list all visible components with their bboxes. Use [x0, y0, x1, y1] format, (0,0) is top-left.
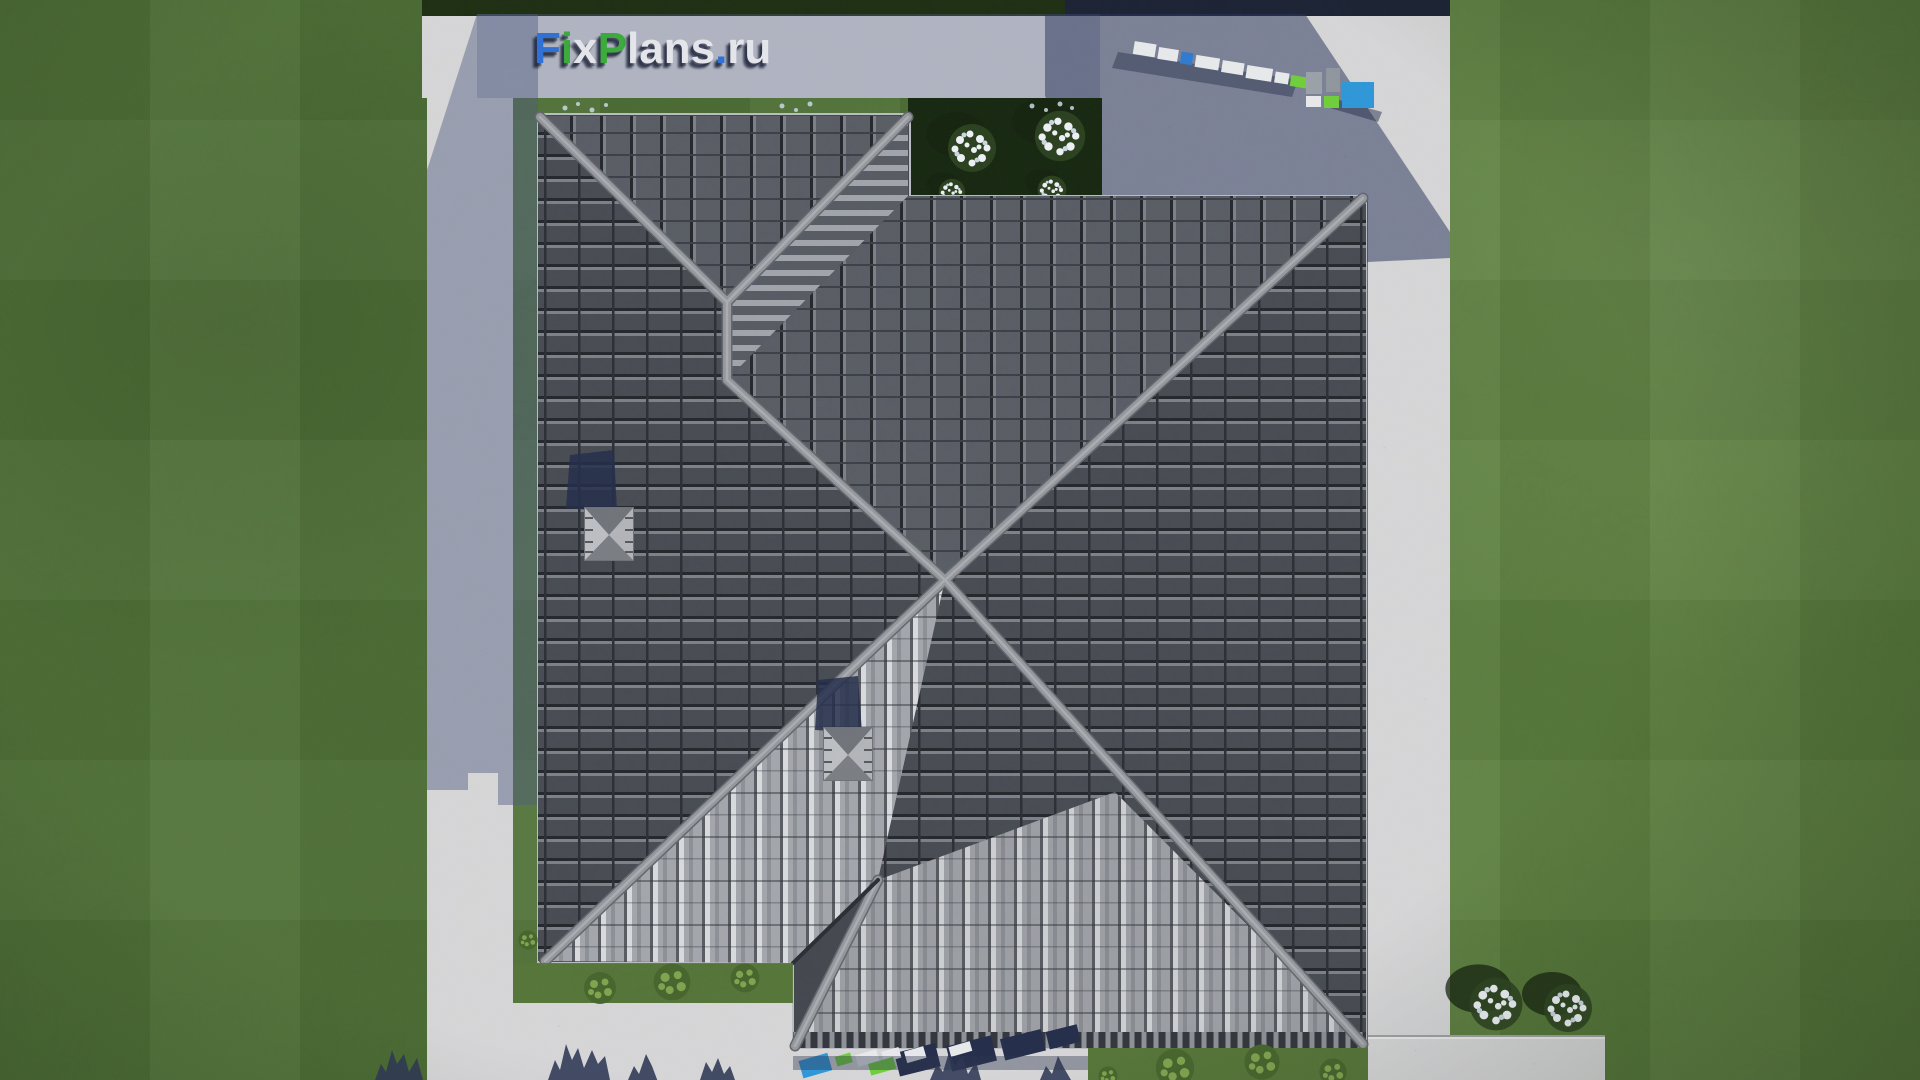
logo-letter: l — [627, 24, 639, 74]
roof-hatch-2 — [824, 728, 872, 780]
watermark-logo: FixPlans.ru — [534, 24, 771, 74]
garden-bed — [908, 98, 1102, 205]
logo-letter: . — [715, 24, 727, 74]
logo-letter: P — [598, 24, 627, 74]
roof-hatch-1 — [585, 508, 633, 560]
logo-letter: a — [639, 24, 663, 74]
roof-hatch-shadow — [566, 450, 617, 512]
aerial-render-stage: FixPlans.ru — [0, 0, 1920, 1080]
logo-letter: i — [561, 24, 573, 74]
logo-letter: r — [727, 24, 744, 74]
shrubs-bottom-right — [1088, 1044, 1368, 1080]
house-roof — [538, 102, 1366, 1049]
logo-letter: x — [573, 24, 597, 74]
logo-letter: F — [534, 24, 561, 74]
roof-hatch-shadow — [815, 676, 862, 733]
lawn-flower-bushes — [1445, 964, 1592, 1032]
logo-letter: s — [691, 24, 715, 74]
house-roof-scene — [0, 0, 1920, 1080]
logo-letter: u — [744, 24, 771, 74]
3d-text-top-right — [1112, 41, 1382, 122]
logo-letter: n — [664, 24, 691, 74]
